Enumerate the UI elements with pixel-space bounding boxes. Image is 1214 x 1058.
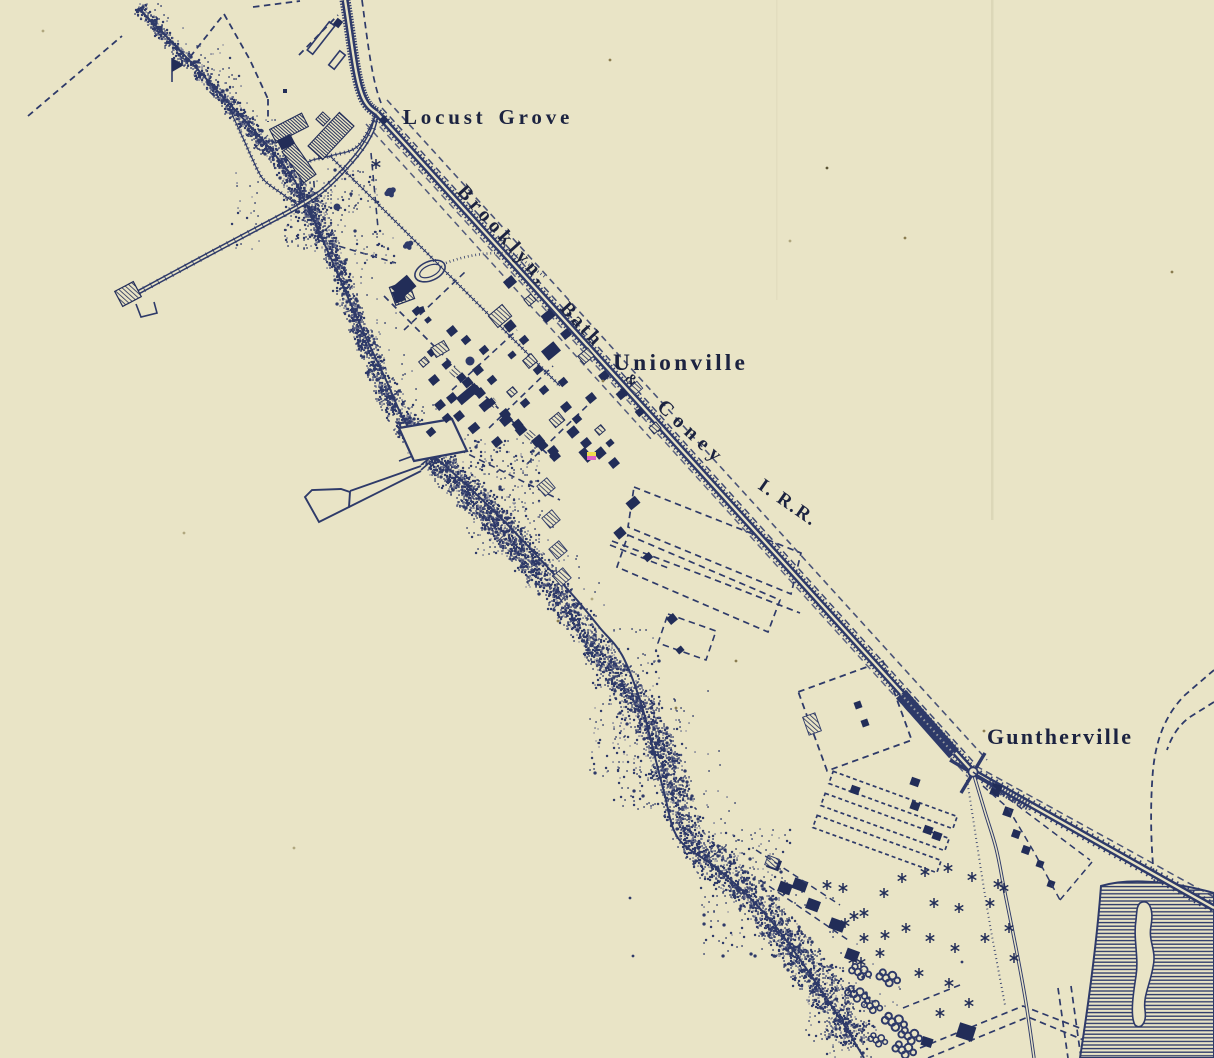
svg-text:Locust Grove: Locust Grove [403,105,573,129]
svg-text:Guntherville: Guntherville [987,724,1133,749]
